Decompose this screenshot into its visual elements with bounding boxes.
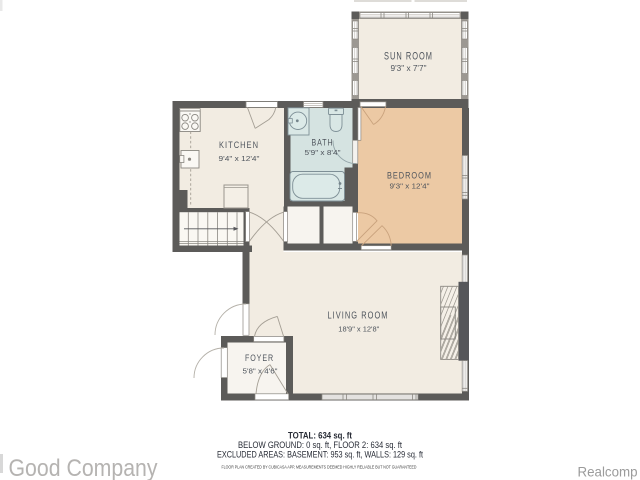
svg-text:5'8" x 4'6": 5'8" x 4'6" [243,367,278,376]
svg-text:BATH: BATH [312,138,334,148]
svg-text:9'3" x 12'4": 9'3" x 12'4" [390,182,431,191]
svg-text:Good Company: Good Company [9,455,158,480]
svg-text:18'9" x 12'8": 18'9" x 12'8" [338,325,379,334]
svg-text:SUN ROOM: SUN ROOM [384,51,433,63]
svg-text:Realcomp: Realcomp [578,464,638,480]
svg-text:BEDROOM: BEDROOM [387,171,432,181]
svg-text:9'3" x 7'7": 9'3" x 7'7" [391,64,427,73]
svg-text:9'4" x 12'4": 9'4" x 12'4" [219,154,261,163]
svg-text:EXCLUDED AREAS: BASEMENT: 953: EXCLUDED AREAS: BASEMENT: 953 sq. ft, WA… [217,450,423,461]
svg-text:FLOOR PLAN CREATED BY CUBICASA: FLOOR PLAN CREATED BY CUBICASA APP, MEAS… [222,465,417,471]
svg-text:KITCHEN: KITCHEN [219,140,259,150]
svg-text:FOYER: FOYER [245,353,274,364]
svg-text:LIVING ROOM: LIVING ROOM [328,311,389,322]
svg-text:5'9" x 8'4": 5'9" x 8'4" [305,148,341,157]
